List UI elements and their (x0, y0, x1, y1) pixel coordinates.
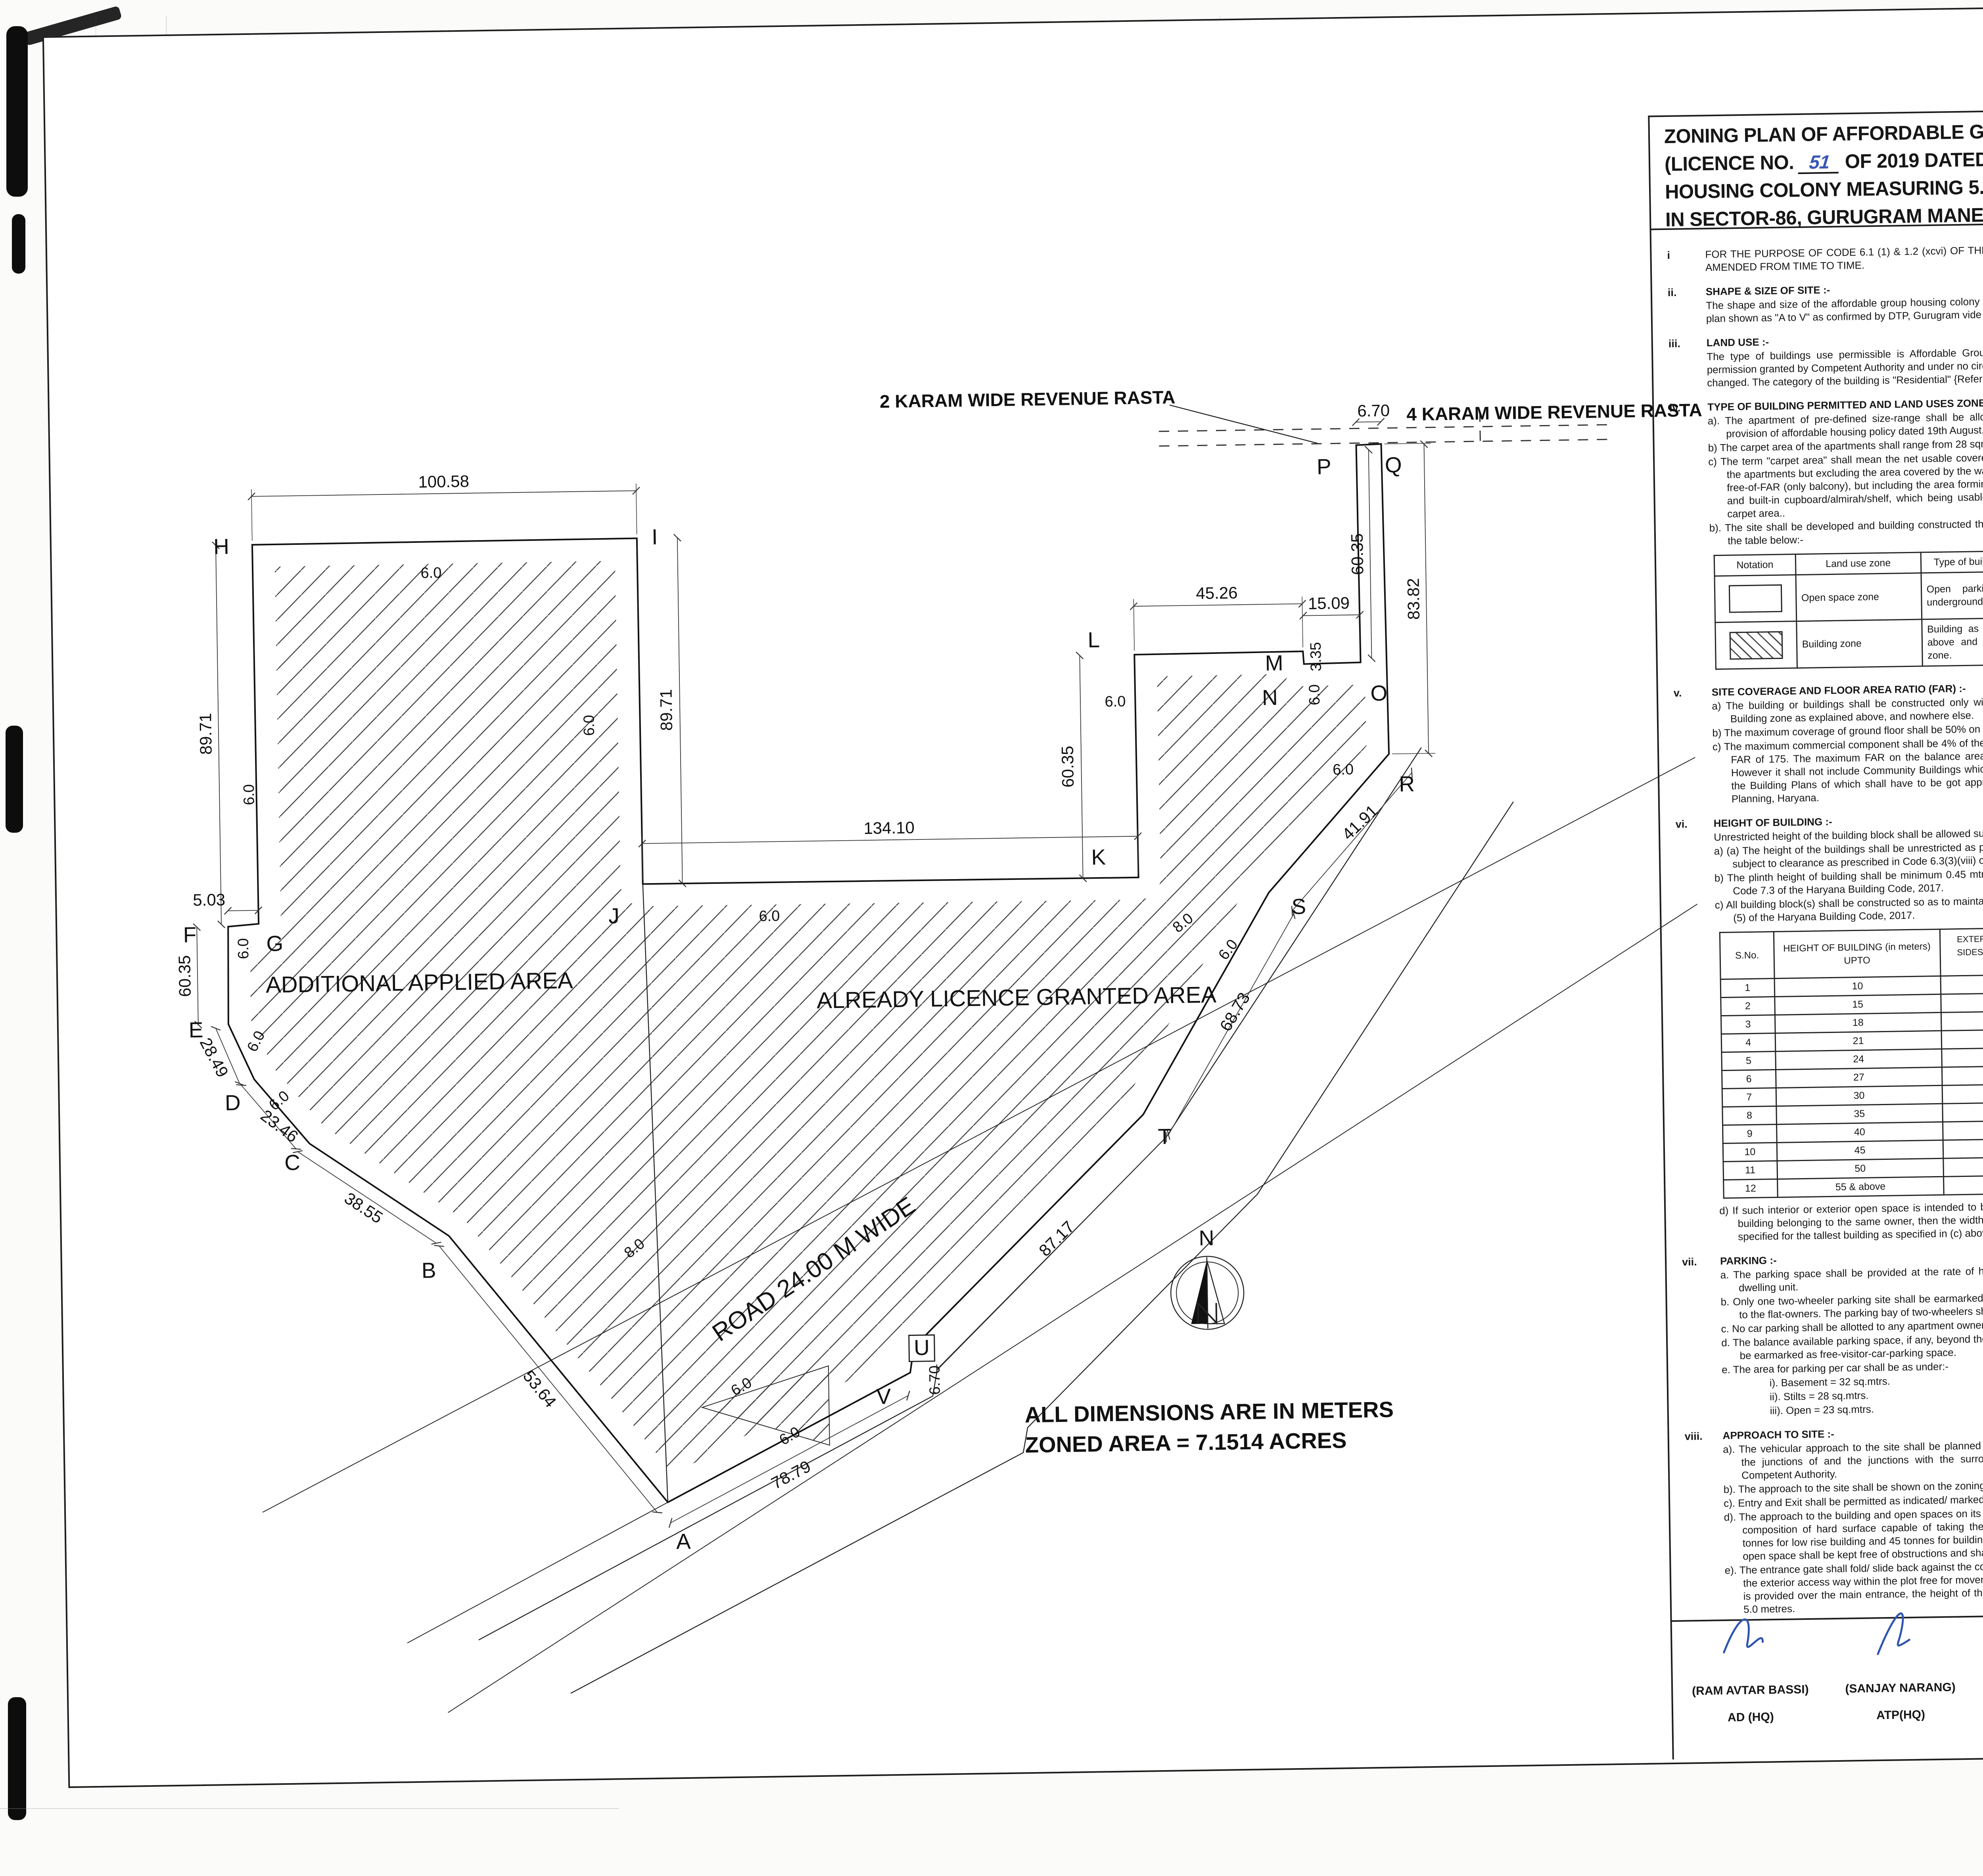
zone-type-cell: Open parking, garden, landscaping featur… (1921, 569, 1983, 619)
dimension-line (677, 538, 683, 883)
dimension-value: 60.35 (175, 955, 194, 997)
vertex-letter-H: H (213, 534, 230, 559)
clause-v: v.SITE COVERAGE AND FLOOR AREA RATIO (FA… (1674, 679, 1983, 807)
signatory-name: (RAJESH KAUSHIK) (1975, 1678, 1983, 1694)
handwritten-value: 51 (1798, 153, 1841, 174)
dimension-line (1356, 422, 1381, 422)
table-header: Type of building permitted/permissible s… (1921, 549, 1983, 573)
table-cell: 18 (1775, 1012, 1941, 1033)
margin-dimension: 6.0 (1105, 693, 1126, 710)
building-heights-table: S.No.HEIGHT OF BUILDING (in meters) UPTO… (1719, 925, 1983, 1199)
table-cell: 8 (1941, 1046, 1983, 1067)
vertex-letter-B: B (421, 1258, 436, 1283)
dimension-value: 60.35 (1058, 746, 1078, 788)
clause-heading: PARKING :- (1720, 1248, 1983, 1268)
plan-area-label: 2 KARAM WIDE REVENUE RASTA (880, 387, 1176, 412)
zone-type-cell: Building as per permissible land use in … (1922, 616, 1983, 666)
table-cell: 12 (1943, 1119, 1983, 1140)
table-cell: 16 (1943, 1173, 1983, 1195)
clause-text: a). The vehicular approach to the site s… (1723, 1436, 1983, 1482)
dimension-value: 3.35 (1308, 642, 1325, 672)
dimension-line (1080, 655, 1083, 878)
title-block: ZONING PLAN OF AFFORDABLE GROUP HOUSING … (1664, 108, 1983, 233)
vertex-letter-S: S (1291, 894, 1306, 919)
dimension-value: 5.03 (193, 890, 225, 909)
signature-strip: (RAM AVTAR BASSI)AD (HQ)(SANJAY NARANG)A… (1674, 1607, 1983, 1756)
table-cell: 6 (1941, 1009, 1983, 1031)
vertex-letter-R: R (1399, 771, 1415, 796)
dimension-line (228, 910, 259, 911)
clause-text: d) If such interior or exterior open spa… (1719, 1198, 1983, 1244)
open-zone-icon (1729, 584, 1782, 613)
vertex-letter-L: L (1087, 627, 1100, 652)
table-cell: 35 (1776, 1104, 1943, 1124)
dimension-value: 60.35 (1348, 533, 1367, 575)
clause-text: c) The term "carpet area" shall mean the… (1708, 448, 1983, 521)
notes-column-left: iFOR THE PURPOSE OF CODE 6.1 (1) & 1.2 (… (1667, 241, 1983, 1617)
clause-viii: viii.APPROACH TO SITE :-a). The vehicula… (1684, 1422, 1983, 1616)
table-cell: 11 (1942, 1100, 1983, 1122)
clause-numeral: ii. (1668, 285, 1707, 326)
vertex-letter-K: K (1091, 845, 1106, 870)
title-segment: (LICENCE NO. (1665, 151, 1799, 175)
plan-area-label: ADDITIONAL APPLIED AREA (266, 968, 573, 998)
table-cell: 5 (1722, 1052, 1776, 1071)
vertex-letter-J: J (608, 903, 619, 928)
table-cell: 24 (1775, 1049, 1942, 1069)
table-cell: 3 (1941, 973, 1983, 995)
vertex-letter-C: C (284, 1150, 301, 1175)
table-cell: 7 (1722, 1088, 1776, 1107)
dimension-value: 83.82 (1404, 578, 1423, 620)
clause-iv: iv.TYPE OF BUILDING PERMITTED AND LAND U… (1669, 394, 1983, 676)
zone-name-cell: Open space zone (1796, 573, 1922, 621)
dimension-line (197, 927, 198, 1025)
vertex-letter-P: P (1317, 454, 1332, 479)
drawing-sheet: LC-3068E ZONING PLAN OF AFFORDABLE GROUP… (0, 0, 1983, 1876)
signature-slot: (SANJAY NARANG)ATP(HQ) (1824, 1617, 1976, 1754)
table-header: EXTERIOR OPEN SPACES TO BE LEFT ON ALL S… (1940, 926, 1983, 976)
clause-vii: vii.PARKING :-a. The parking space shall… (1682, 1248, 1983, 1419)
signatory-name: (SANJAY NARANG) (1825, 1681, 1975, 1696)
table-header: Land use zone (1795, 552, 1921, 575)
table-cell: 13 (1943, 1137, 1983, 1159)
vertex-letter-U: U (914, 1335, 930, 1360)
signatory-title: AD (HQ) (1676, 1709, 1826, 1725)
margin-dimension: 6.0 (241, 784, 258, 805)
margin-dimension: 6.0 (1333, 761, 1354, 778)
clause-text: d). The approach to the building and ope… (1724, 1504, 1983, 1563)
clause-iii: iii.LAND USE :-The type of buildings use… (1668, 330, 1983, 391)
plan-area-label: 4 KARAM WIDE REVENUE RASTA (1406, 400, 1702, 425)
table-cell: 30 (1776, 1085, 1943, 1106)
signature-scribble (1865, 1602, 1934, 1672)
table-cell: 7 (1941, 1027, 1983, 1049)
rasta-leader-line (1170, 403, 1318, 446)
table-cell: 45 (1777, 1140, 1943, 1161)
table-cell: 10 (1723, 1143, 1777, 1162)
dimension-value: 89.71 (656, 689, 676, 731)
vertex-letter-E: E (188, 1018, 203, 1042)
vertex-letter-I: I (652, 525, 658, 549)
signatory-title: ATP(HQ) (1826, 1707, 1976, 1723)
clause-numeral: i (1667, 248, 1705, 275)
table-header: HEIGHT OF BUILDING (in meters) UPTO (1774, 929, 1941, 978)
margin-dimension: 6.0 (759, 908, 780, 925)
site-plan: 100.5889.7189.71134.1060.3545.2615.093.3… (151, 353, 1717, 1724)
table-row: Building zoneBuilding as per permissible… (1715, 616, 1983, 669)
clause-text: The type of buildings use permissible is… (1707, 343, 1983, 389)
margin-dimension: 6.0 (581, 715, 598, 736)
dimension-line (251, 491, 636, 496)
vertex-letter-O: O (1370, 680, 1388, 705)
table-cell: 3 (1721, 1015, 1775, 1034)
table-cell: 5 (1941, 991, 1983, 1013)
clause-vi: vi.HEIGHT OF BUILDING :-Unrestricted hei… (1676, 810, 1983, 1245)
clause-text: c) The maximum commercial component shal… (1713, 734, 1983, 806)
vertex-letter-G: G (266, 931, 284, 956)
table-cell: 8 (1722, 1106, 1776, 1125)
clause-ii: ii.SHAPE & SIZE OF SITE :-The shape and … (1668, 278, 1983, 326)
table-row: Open space zoneOpen parking, garden, lan… (1715, 569, 1983, 623)
land-use-zones-table: NotationLand use zoneType of building pe… (1714, 548, 1983, 670)
dimension-value: 15.09 (1308, 594, 1350, 613)
table-cell: 21 (1775, 1031, 1942, 1051)
compass-north-letter: N (1199, 1226, 1214, 1250)
table-cell: 55 & above (1777, 1177, 1944, 1197)
clause-heading: APPROACH TO SITE :- (1722, 1422, 1983, 1442)
zone-name-cell: Building zone (1796, 619, 1922, 668)
vertex-letter-T: T (1158, 1124, 1172, 1149)
table-cell: 50 (1777, 1158, 1943, 1179)
vertex-letter-F: F (183, 922, 197, 947)
table-cell: 12 (1724, 1179, 1778, 1198)
table-cell: 6 (1722, 1070, 1776, 1089)
table-cell: 4 (1721, 1033, 1775, 1052)
title-segment: OF 2019 DATED (1839, 148, 1983, 173)
dimension-line (1424, 444, 1429, 753)
dimension-value: 6.70 (926, 1365, 944, 1395)
table-cell: 27 (1776, 1067, 1942, 1088)
dimension-value: 134.10 (863, 818, 915, 837)
table-cell: 11 (1723, 1161, 1777, 1180)
table-cell: 1 (1720, 979, 1774, 998)
dimension-line (216, 545, 221, 924)
vertex-letter-N: N (1262, 685, 1278, 710)
vertex-letter-V: V (876, 1384, 891, 1409)
hatch-zone-icon (1729, 631, 1783, 659)
table-cell: 14 (1943, 1155, 1983, 1177)
table-cell: 15 (1774, 994, 1941, 1015)
table-cell: 40 (1776, 1122, 1943, 1142)
dimension-line (1133, 604, 1302, 606)
margin-dimension: 6.0 (235, 938, 252, 959)
table-cell: 2 (1721, 997, 1775, 1016)
dimension-value: 6.70 (1357, 401, 1390, 420)
dimension-value: 45.26 (1196, 583, 1238, 603)
table-header: S.No. (1720, 932, 1774, 979)
table-header: Notation (1714, 554, 1795, 576)
table-cell: 10 (1774, 976, 1941, 996)
dimension-line (642, 836, 1138, 844)
signatory-title: DTP (HQ) (1976, 1705, 1983, 1721)
vertex-letter-A: A (676, 1529, 691, 1554)
margin-dimension: 6.0 (1306, 684, 1323, 705)
plan-area-label: ALL DIMENSIONS ARE IN METERS (1024, 1397, 1394, 1427)
table-cell: 9 (1723, 1125, 1777, 1144)
dimension-value: 89.71 (196, 713, 215, 755)
vertex-letter-M: M (1265, 650, 1283, 675)
vertex-letter-D: D (224, 1090, 241, 1115)
dimension-value: 100.58 (418, 472, 469, 491)
signature-scribble (1715, 1604, 1784, 1675)
north-compass (1170, 1256, 1245, 1330)
plan-area-label: ZONED AREA = 7.1514 ACRES (1025, 1428, 1347, 1457)
table-cell: 10 (1942, 1082, 1983, 1104)
table-cell: 9 (1942, 1064, 1983, 1086)
margin-dimension: 6.0 (420, 565, 441, 582)
vertex-letter-Q: Q (1385, 452, 1402, 477)
